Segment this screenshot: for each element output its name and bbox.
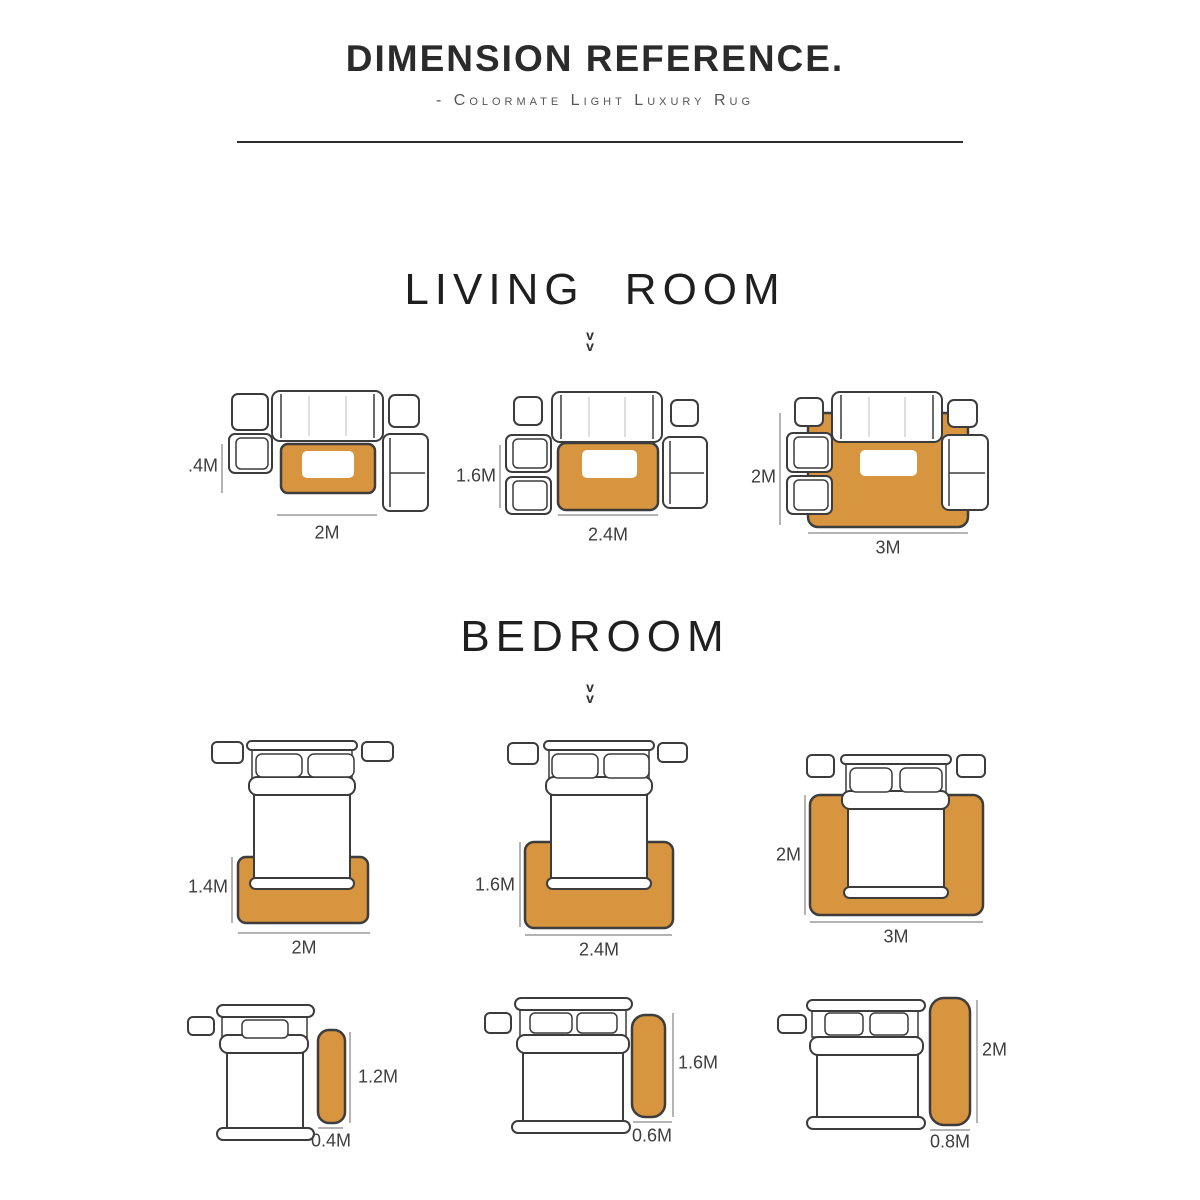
pillow [256,754,302,777]
rug-height-label: 1.6M [475,875,515,896]
page-title: DIMENSION REFERENCE. [0,38,1190,80]
pillow [577,1013,617,1033]
rug-width-label: 2.4M [588,525,628,546]
side-table [389,395,419,427]
page-subtitle: - Colormate Light Luxury Rug [0,92,1190,110]
nightstand [658,743,687,762]
runner-rug [632,1015,665,1117]
bedside-runner-0-8m-diagram [765,995,1015,1160]
rug-height-label: 2M [776,845,801,866]
double-chevron-down-icon: v v [0,682,1180,704]
side-table [948,400,977,427]
pillow [870,1013,908,1035]
single-bed [217,1005,314,1140]
rug-width-label: 2M [291,938,316,959]
header-divider [237,141,963,143]
rug-height-label: 1.6M [678,1053,718,1074]
bedroom-layout-3m: 2M 3M [760,735,1010,965]
side-table [514,397,542,425]
coffee-table [582,450,637,478]
rug-height-label: 1.2M [358,1067,398,1088]
living-room-heading: LIVING ROOM [0,265,1190,315]
rug-width-label: 0.4M [311,1131,351,1152]
nightstand [807,755,834,777]
bedside-runner-layout-0-8m: 2M 0.8M [765,995,1015,1160]
pillow [530,1013,572,1033]
rug-width-label: 0.6M [632,1126,672,1147]
armchair [506,477,551,514]
rug-width-label: 3M [875,538,900,559]
living-room-layout-2m-diagram [185,385,430,565]
bedside-runner-0-6m-diagram [475,995,715,1160]
pillow [604,754,649,778]
sofa [552,392,662,442]
sofa [832,392,942,442]
side-table [671,400,698,426]
nightstand [212,742,243,763]
living-room-layout-2m: .4M 2M [185,385,430,565]
rug-height-label: 1.4M [188,877,228,898]
bed [247,741,357,889]
rug-width-label: 2.4M [579,940,619,961]
living-room-layout-3m: 2M 3M [740,385,1040,580]
bedside-runner-layout-0-4m: 1.2M 0.4M [180,995,395,1160]
rug-height-label: .4M [188,456,218,477]
rug-height-label: 2M [751,467,776,488]
nightstand [508,743,538,764]
pillow [552,754,598,778]
bedroom-heading: BEDROOM [0,612,1190,662]
coffee-table [860,450,917,476]
double-bed [512,998,632,1133]
coffee-table [302,451,354,478]
runner-rug [930,998,970,1125]
living-room-layout-2-4m: 1.6M 2.4M [450,385,715,565]
bedroom-layout-2m: 1.4M 2M [180,735,430,965]
runner-rug [318,1030,345,1123]
armchair [787,433,832,472]
nightstand [957,755,985,777]
pillow [825,1013,863,1035]
loveseat [383,434,428,511]
bed [841,755,951,898]
pillow [308,754,354,777]
dimension-reference-page: DIMENSION REFERENCE. - Colormate Light L… [0,0,1200,1200]
rug-height-label: 2M [982,1040,1007,1061]
loveseat [663,437,707,508]
armchair [787,476,832,514]
rug-width-label: 3M [883,927,908,948]
double-bed [807,1000,925,1129]
bed [544,741,654,889]
side-table [795,398,823,426]
armchair [506,435,551,472]
pillow [850,768,892,792]
nightstand [778,1015,806,1033]
double-chevron-down-icon: v v [0,330,1180,352]
sofa [272,391,383,441]
loveseat [942,435,988,510]
pillow [900,768,942,792]
rug-width-label: 2M [314,523,339,544]
armchair [229,434,272,473]
rug-height-label: 1.6M [456,466,496,487]
side-table [232,394,268,430]
nightstand [485,1013,511,1033]
rug-width-label: 0.8M [930,1132,970,1153]
bedroom-layout-2-4m: 1.6M 2.4M [465,735,715,965]
pillow [242,1020,288,1038]
bedroom-layout-2m-diagram [180,735,430,965]
nightstand [188,1017,214,1035]
bedroom-layout-2-4m-diagram [465,735,715,965]
nightstand [362,742,393,761]
bedside-runner-layout-0-6m: 1.6M 0.6M [475,995,715,1160]
